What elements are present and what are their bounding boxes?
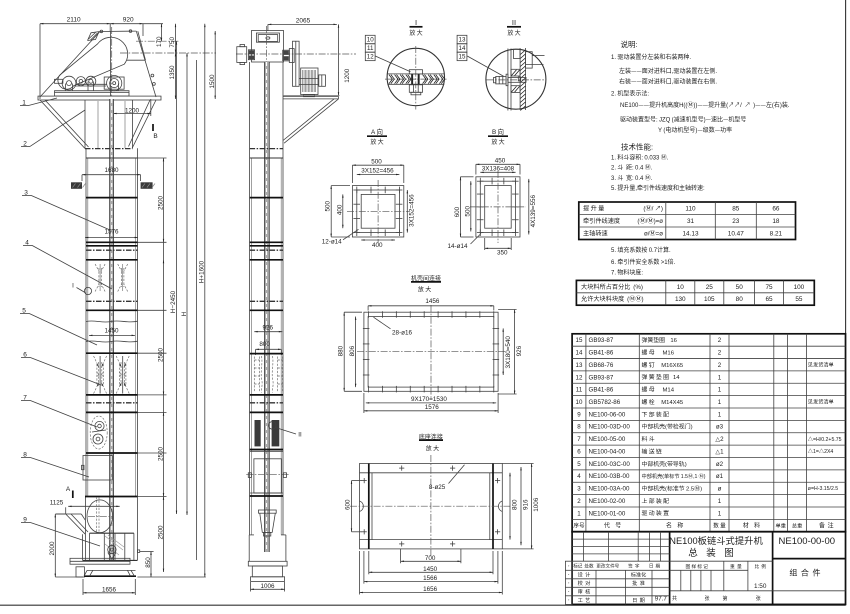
svg-text:2500: 2500 bbox=[158, 525, 165, 540]
svg-text:GB5782-86: GB5782-86 bbox=[589, 399, 621, 406]
svg-text:中部机壳(单标节 1.5Ⓜ,1 Ⓜ): 中部机壳(单标节 1.5Ⓜ,1 Ⓜ) bbox=[642, 472, 706, 480]
svg-text:NE100-02-00: NE100-02-00 bbox=[589, 498, 626, 505]
svg-text:31: 31 bbox=[687, 218, 695, 225]
svg-text:1. 料斗容积: 0.033 Ⓜ.: 1. 料斗容积: 0.033 Ⓜ. bbox=[611, 152, 669, 161]
svg-text:审 核: 审 核 bbox=[578, 587, 591, 595]
svg-text:3: 3 bbox=[577, 486, 581, 493]
svg-text:12-ø14: 12-ø14 bbox=[322, 239, 342, 246]
svg-text:8.21: 8.21 bbox=[770, 230, 783, 237]
svg-text:23: 23 bbox=[732, 218, 740, 225]
svg-text:中部机壳(标准节 2.5Ⓜ): 中部机壳(标准节 2.5Ⓜ) bbox=[642, 483, 703, 492]
svg-text:3X136=408: 3X136=408 bbox=[482, 166, 515, 173]
svg-text:I: I bbox=[72, 283, 74, 290]
svg-text:数 量: 数 量 bbox=[713, 521, 726, 529]
svg-text:400: 400 bbox=[372, 242, 383, 249]
svg-text:比 例: 比 例 bbox=[754, 563, 766, 570]
svg-text:10: 10 bbox=[677, 284, 685, 291]
svg-text:张: 张 bbox=[704, 595, 709, 602]
svg-text:弹 簧 垫 圈 14: 弹 簧 垫 圈 14 bbox=[642, 372, 681, 381]
svg-text:II: II bbox=[298, 432, 302, 439]
svg-text:2500: 2500 bbox=[158, 447, 165, 462]
svg-text:NE100-03B-00: NE100-03B-00 bbox=[589, 473, 630, 480]
svg-text:1450: 1450 bbox=[104, 328, 119, 335]
svg-text:签 字: 签 字 bbox=[628, 563, 640, 570]
svg-text:800: 800 bbox=[259, 341, 270, 348]
svg-text:放 大: 放 大 bbox=[409, 28, 422, 37]
svg-text:GB68-76: GB68-76 bbox=[589, 362, 614, 369]
svg-text:6: 6 bbox=[577, 448, 581, 455]
svg-text:1350: 1350 bbox=[169, 65, 176, 80]
svg-text:2110: 2110 bbox=[67, 16, 81, 23]
svg-text:7: 7 bbox=[577, 436, 581, 443]
svg-text:B 向: B 向 bbox=[492, 127, 504, 136]
svg-text:10.47: 10.47 bbox=[728, 230, 744, 237]
svg-text:驱 动 装 置: 驱 动 装 置 bbox=[642, 508, 670, 517]
svg-text:10: 10 bbox=[367, 37, 374, 44]
svg-text:1006: 1006 bbox=[260, 583, 275, 590]
svg-text:1200: 1200 bbox=[344, 68, 351, 83]
svg-text:55: 55 bbox=[795, 296, 803, 303]
svg-text:△1: △1 bbox=[715, 448, 724, 455]
svg-text:日 期: 日 期 bbox=[649, 564, 661, 570]
svg-text:校 对: 校 对 bbox=[578, 579, 591, 587]
svg-text:9: 9 bbox=[577, 411, 581, 418]
svg-text:3X152=456: 3X152=456 bbox=[409, 194, 416, 227]
svg-text:700: 700 bbox=[425, 555, 436, 562]
svg-text:1576: 1576 bbox=[425, 404, 440, 411]
svg-text:916: 916 bbox=[522, 499, 529, 510]
svg-text:926: 926 bbox=[516, 345, 523, 356]
svg-text:14.13: 14.13 bbox=[683, 230, 699, 237]
svg-text:750: 750 bbox=[169, 37, 176, 48]
svg-text:A: A bbox=[66, 486, 71, 493]
svg-text:GB93-87: GB93-87 bbox=[589, 337, 614, 344]
svg-text:14-ø14: 14-ø14 bbox=[448, 243, 468, 250]
svg-text:ø/Ⓜ=ø: ø/Ⓜ=ø bbox=[644, 228, 663, 237]
svg-text:第: 第 bbox=[722, 595, 727, 602]
svg-text:97.7: 97.7 bbox=[655, 595, 668, 602]
svg-text:12: 12 bbox=[367, 54, 374, 61]
svg-text:880: 880 bbox=[337, 345, 344, 356]
svg-text:1656: 1656 bbox=[423, 586, 438, 593]
svg-text:说明:: 说明: bbox=[621, 39, 638, 50]
svg-text:11: 11 bbox=[576, 387, 583, 394]
svg-text:7. 物料块度:: 7. 物料块度: bbox=[611, 268, 643, 277]
svg-text:标记: 标记 bbox=[573, 563, 583, 570]
svg-text:13: 13 bbox=[576, 362, 583, 369]
svg-text:代 号: 代 号 bbox=[604, 521, 621, 530]
svg-text:主轴转速: 主轴转速 bbox=[583, 228, 608, 237]
svg-text:设 计: 设 计 bbox=[578, 570, 591, 578]
svg-text:806: 806 bbox=[349, 345, 356, 356]
svg-text:65: 65 bbox=[765, 296, 773, 303]
svg-text:15: 15 bbox=[576, 337, 583, 344]
svg-text:2000: 2000 bbox=[49, 541, 56, 556]
svg-text:28-ø16: 28-ø16 bbox=[392, 329, 412, 336]
svg-text:牵引件线速度: 牵引件线速度 bbox=[583, 216, 620, 225]
svg-text:序号: 序号 bbox=[573, 521, 585, 529]
svg-text:B: B bbox=[153, 133, 157, 140]
svg-text:·: · bbox=[567, 580, 571, 586]
svg-text:总 装 图: 总 装 图 bbox=[688, 545, 734, 559]
svg-text:△=H/0.2+5.75: △=H/0.2+5.75 bbox=[808, 435, 842, 443]
svg-text:8-ø25: 8-ø25 bbox=[429, 484, 446, 491]
svg-text:13: 13 bbox=[459, 37, 466, 44]
svg-text:2: 2 bbox=[577, 498, 581, 505]
svg-text:1: 1 bbox=[718, 411, 722, 418]
svg-text:3. 斗 宽: 0.4 Ⓜ.: 3. 斗 宽: 0.4 Ⓜ. bbox=[611, 173, 653, 182]
svg-text:75: 75 bbox=[765, 284, 773, 291]
svg-text:1500: 1500 bbox=[209, 74, 216, 89]
svg-text:右装——面对进料口,驱动装置在右侧.: 右装——面对进料口,驱动装置在右侧. bbox=[619, 76, 717, 85]
svg-text:螺 钉 M16X65: 螺 钉 M16X65 bbox=[642, 360, 684, 369]
svg-text:NE100-06-00: NE100-06-00 bbox=[589, 411, 626, 418]
svg-text:ø1: ø1 bbox=[716, 473, 724, 480]
svg-text:6. 牵引件安全系数 >1倍.: 6. 牵引件安全系数 >1倍. bbox=[611, 257, 676, 266]
svg-text:50: 50 bbox=[736, 284, 744, 291]
svg-text:ø2: ø2 bbox=[716, 461, 724, 468]
svg-text:1:50: 1:50 bbox=[754, 583, 767, 590]
svg-text:5. 填充系数按 0.7计算.: 5. 填充系数按 0.7计算. bbox=[611, 245, 671, 254]
svg-text:1576: 1576 bbox=[104, 229, 119, 236]
svg-text:1: 1 bbox=[718, 498, 722, 505]
svg-text:放 大: 放 大 bbox=[491, 137, 504, 146]
svg-text:926: 926 bbox=[262, 324, 273, 331]
svg-text:2500: 2500 bbox=[158, 196, 165, 211]
svg-text:2500: 2500 bbox=[158, 348, 165, 363]
svg-text:放 大: 放 大 bbox=[426, 443, 439, 452]
svg-text:中部机壳(带检视门): 中部机壳(带检视门) bbox=[642, 422, 693, 431]
svg-text:名 称: 名 称 bbox=[666, 521, 683, 530]
svg-text:A 向: A 向 bbox=[371, 127, 383, 136]
svg-text:左装——面对进料口,驱动装置在左侧.: 左装——面对进料口,驱动装置在左侧. bbox=[619, 66, 717, 75]
svg-text:5. 提升量,牵引件线速度和主轴转速:: 5. 提升量,牵引件线速度和主轴转速: bbox=[611, 183, 705, 192]
svg-text:·: · bbox=[567, 572, 571, 578]
svg-text:NE100——提升机高度H((Ⓜ))——提升量(↗↗/ ↗: NE100——提升机高度H((Ⓜ))——提升量(↗↗/ ↗ )——左(右)装. bbox=[620, 100, 790, 109]
svg-text:驱动装置型号: JZQ (减速机型号)—速比—机型号: 驱动装置型号: JZQ (减速机型号)—速比—机型号 bbox=[620, 114, 746, 123]
svg-text:4X139=556: 4X139=556 bbox=[530, 195, 537, 228]
svg-text:大块料所占百分比 (%): 大块料所占百分比 (%) bbox=[581, 282, 643, 291]
svg-text:重 量: 重 量 bbox=[730, 563, 742, 570]
svg-text:2: 2 bbox=[718, 350, 722, 357]
svg-text:2. 机型表示法:: 2. 机型表示法: bbox=[611, 89, 649, 98]
svg-text:2: 2 bbox=[718, 362, 722, 369]
svg-text:18: 18 bbox=[772, 218, 780, 225]
svg-text:材 料: 材 料 bbox=[743, 521, 760, 530]
svg-text:(Ⓜ/ ↗): (Ⓜ/ ↗) bbox=[643, 203, 663, 212]
svg-text:上 部 装 配: 上 部 装 配 bbox=[642, 496, 670, 505]
svg-text:ø3: ø3 bbox=[716, 424, 724, 431]
svg-text:1456: 1456 bbox=[425, 298, 440, 305]
svg-text:2. 斗 距: 0.4 Ⓜ.: 2. 斗 距: 0.4 Ⓜ. bbox=[611, 163, 653, 172]
svg-text:600: 600 bbox=[454, 206, 461, 217]
svg-text:张: 张 bbox=[756, 595, 761, 602]
svg-text:105: 105 bbox=[704, 296, 715, 303]
svg-text:螺 栓 M14X45: 螺 栓 M14X45 bbox=[642, 397, 684, 406]
svg-text:500: 500 bbox=[464, 206, 471, 217]
svg-text:14: 14 bbox=[576, 350, 583, 357]
svg-text:(Ⓜ/Ⓜ)=ø: (Ⓜ/Ⓜ)=ø bbox=[637, 216, 663, 225]
svg-text:2: 2 bbox=[718, 337, 722, 344]
svg-text:NE100-03C-00: NE100-03C-00 bbox=[589, 461, 631, 468]
svg-text:100: 100 bbox=[794, 284, 805, 291]
svg-text:备 注: 备 注 bbox=[819, 521, 834, 530]
svg-text:H+1600: H+1600 bbox=[199, 260, 206, 283]
svg-text:850: 850 bbox=[145, 557, 152, 568]
svg-text:螺 母 M16: 螺 母 M16 bbox=[642, 347, 675, 356]
svg-text:85: 85 bbox=[732, 205, 740, 212]
svg-text:总重: 总重 bbox=[792, 521, 802, 529]
svg-text:25: 25 bbox=[706, 284, 714, 291]
svg-text:12: 12 bbox=[576, 374, 583, 381]
svg-text:14: 14 bbox=[459, 45, 466, 52]
svg-text:标准化: 标准化 bbox=[631, 570, 647, 578]
svg-text:400: 400 bbox=[336, 204, 343, 215]
svg-text:见发货清单: 见发货清单 bbox=[808, 398, 834, 406]
svg-text:2065: 2065 bbox=[296, 18, 311, 25]
svg-text:见发货清单: 见发货清单 bbox=[808, 361, 834, 369]
svg-text:弹簧垫圈 16: 弹簧垫圈 16 bbox=[642, 335, 678, 344]
svg-text:更改文件号: 更改文件号 bbox=[596, 563, 619, 570]
svg-text:500: 500 bbox=[371, 158, 382, 165]
svg-text:下 部 装 配: 下 部 装 配 bbox=[642, 409, 670, 418]
svg-text:提 升 量: 提 升 量 bbox=[583, 203, 604, 212]
svg-text:放 大: 放 大 bbox=[370, 137, 383, 146]
svg-text:组 合 件: 组 合 件 bbox=[789, 568, 820, 579]
svg-text:3X152=456: 3X152=456 bbox=[361, 168, 394, 175]
svg-text:1: 1 bbox=[577, 510, 581, 517]
svg-text:放 大: 放 大 bbox=[418, 284, 431, 293]
svg-text:II: II bbox=[512, 18, 516, 27]
svg-text:NE100-03D-00: NE100-03D-00 bbox=[589, 424, 631, 431]
svg-text:ø: ø bbox=[718, 486, 722, 493]
svg-text:料 斗: 料 斗 bbox=[642, 434, 655, 443]
svg-text:1: 1 bbox=[718, 387, 722, 394]
svg-text:Y (电动机型号)—级数—功率: Y (电动机型号)—级数—功率 bbox=[658, 125, 732, 134]
svg-text:批 准: 批 准 bbox=[632, 579, 645, 587]
svg-text:中部机壳(带导轨): 中部机壳(带导轨) bbox=[642, 459, 687, 468]
svg-text:日 期: 日 期 bbox=[632, 597, 645, 604]
svg-text:NE100-04-00: NE100-04-00 bbox=[589, 448, 626, 455]
svg-text:10: 10 bbox=[576, 399, 583, 406]
svg-text:NE100-01-00: NE100-01-00 bbox=[589, 510, 626, 517]
svg-text:110: 110 bbox=[685, 205, 696, 212]
svg-text:NE100-00-00: NE100-00-00 bbox=[779, 536, 836, 547]
svg-text:130: 130 bbox=[675, 296, 686, 303]
svg-text:1: 1 bbox=[718, 399, 722, 406]
svg-text:600: 600 bbox=[345, 499, 352, 510]
svg-text:图 样 标 记: 图 样 标 记 bbox=[685, 563, 708, 570]
svg-text:△1=△2X4: △1=△2X4 bbox=[808, 447, 834, 455]
svg-text:3X180=540: 3X180=540 bbox=[505, 336, 512, 369]
svg-text:1: 1 bbox=[718, 374, 722, 381]
svg-text:允许大块料块度 (ⓂⓂ): 允许大块料块度 (ⓂⓂ) bbox=[581, 294, 644, 303]
svg-text:·: · bbox=[567, 597, 571, 603]
svg-text:·: · bbox=[567, 589, 571, 595]
svg-text:技术性能:: 技术性能: bbox=[621, 142, 653, 153]
svg-text:1680: 1680 bbox=[104, 167, 119, 174]
svg-text:单重: 单重 bbox=[776, 521, 786, 529]
svg-text:5: 5 bbox=[577, 461, 581, 468]
svg-text:4: 4 bbox=[577, 473, 581, 480]
svg-text:GB41-86: GB41-86 bbox=[589, 387, 614, 394]
svg-text:1006: 1006 bbox=[533, 497, 540, 512]
svg-text:920: 920 bbox=[123, 16, 134, 23]
svg-text:1125: 1125 bbox=[50, 499, 64, 506]
svg-text:螺 母 M14: 螺 母 M14 bbox=[642, 385, 675, 394]
svg-text:1: 1 bbox=[718, 510, 722, 517]
svg-text:I: I bbox=[415, 18, 417, 27]
svg-text:GB93-87: GB93-87 bbox=[589, 374, 614, 381]
svg-text:800: 800 bbox=[512, 499, 519, 510]
svg-text:1. 驱动装置分左装和右装两种.: 1. 驱动装置分左装和右装两种. bbox=[611, 52, 691, 61]
svg-text:66: 66 bbox=[772, 205, 780, 212]
svg-text:9X170=1530: 9X170=1530 bbox=[411, 396, 447, 403]
svg-text:H−2450: H−2450 bbox=[170, 290, 177, 313]
svg-text:共: 共 bbox=[672, 595, 677, 602]
svg-text:ø=H-3.15/2.5: ø=H-3.15/2.5 bbox=[808, 485, 839, 492]
svg-text:1566: 1566 bbox=[423, 575, 438, 582]
svg-text:GB41-86: GB41-86 bbox=[589, 350, 614, 357]
svg-text:350: 350 bbox=[497, 250, 508, 257]
svg-text:NE100-03A-00: NE100-03A-00 bbox=[589, 486, 630, 493]
svg-text:170: 170 bbox=[156, 36, 163, 47]
svg-text:输 送 链: 输 送 链 bbox=[642, 446, 662, 455]
svg-text:△2: △2 bbox=[715, 436, 724, 443]
svg-text:11: 11 bbox=[367, 45, 374, 52]
svg-text:8: 8 bbox=[577, 424, 581, 431]
svg-text:500: 500 bbox=[325, 200, 332, 211]
svg-text:H: H bbox=[181, 311, 188, 316]
svg-text:工 艺: 工 艺 bbox=[578, 597, 591, 604]
svg-text:·: · bbox=[567, 563, 571, 569]
svg-text:450: 450 bbox=[495, 158, 506, 165]
svg-text:处数: 处数 bbox=[584, 563, 594, 570]
svg-text:15: 15 bbox=[459, 54, 466, 61]
svg-text:1450: 1450 bbox=[423, 566, 438, 573]
svg-text:1656: 1656 bbox=[102, 587, 117, 594]
svg-text:NE100-05-00: NE100-05-00 bbox=[589, 436, 626, 443]
svg-text:80: 80 bbox=[736, 296, 744, 303]
svg-text:放 大: 放 大 bbox=[507, 28, 520, 37]
